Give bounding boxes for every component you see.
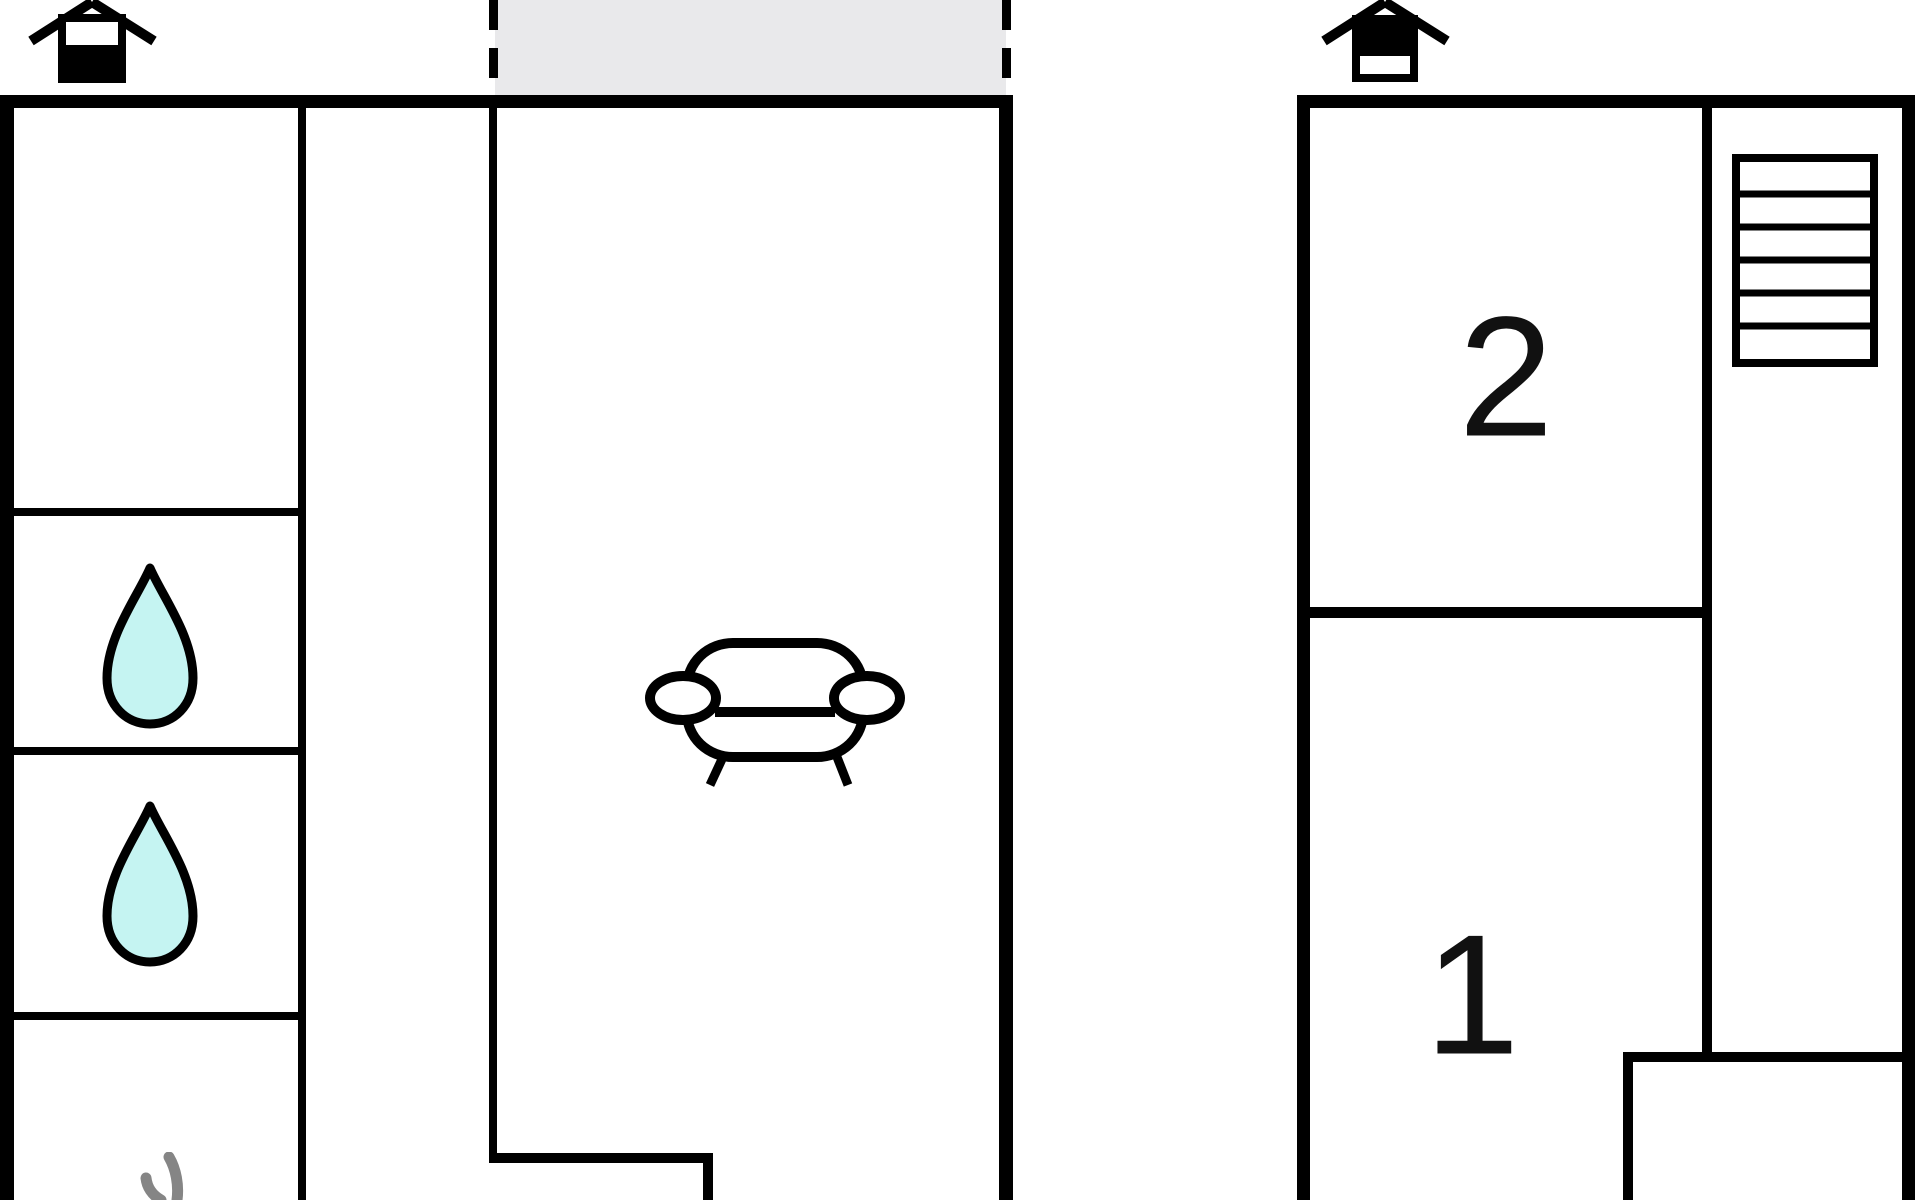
stairs-icon [1732, 154, 1878, 367]
porch-dashed-edge-left [489, 0, 498, 95]
steam-icon [130, 1152, 200, 1200]
exterior-wall-right [1902, 95, 1915, 1200]
closet-wall-vertical [1623, 1052, 1633, 1200]
room-living [497, 108, 999, 1153]
porch-dashed-edge-right [1002, 0, 1011, 95]
room-divider-2 [14, 747, 306, 755]
room-hallway [306, 108, 489, 1200]
room-divider-1 [14, 508, 306, 516]
floor-plan-canvas: 2 1 [0, 0, 1920, 1200]
room-label-bedroom-1: 1 [1424, 910, 1519, 1081]
exterior-wall-right [999, 95, 1013, 1200]
entrance-porch [495, 0, 1006, 95]
interior-wall-step-horizontal [489, 1153, 713, 1163]
water-drop-icon [97, 562, 203, 730]
room-label-bedroom-2: 2 [1458, 292, 1553, 463]
house-entrance-icon [1318, 0, 1453, 88]
room-storage [14, 108, 298, 508]
room-divider-bedrooms [1310, 607, 1702, 618]
exterior-wall-top [1297, 95, 1915, 108]
interior-wall-hallway [489, 95, 497, 1163]
interior-wall-bath-column [298, 95, 306, 1200]
exterior-wall-top [0, 95, 1013, 108]
water-drop-icon [97, 800, 203, 968]
house-entrance-icon [25, 0, 160, 88]
sofa-icon [640, 635, 920, 795]
room-closet [1633, 1062, 1902, 1200]
exterior-wall-left [1297, 95, 1310, 1200]
closet-wall-horizontal [1623, 1052, 1915, 1062]
room-divider-3 [14, 1012, 306, 1020]
interior-wall-stair-hall [1702, 95, 1712, 1060]
exterior-wall-left [0, 95, 14, 1200]
interior-wall-step-vertical [703, 1153, 713, 1200]
